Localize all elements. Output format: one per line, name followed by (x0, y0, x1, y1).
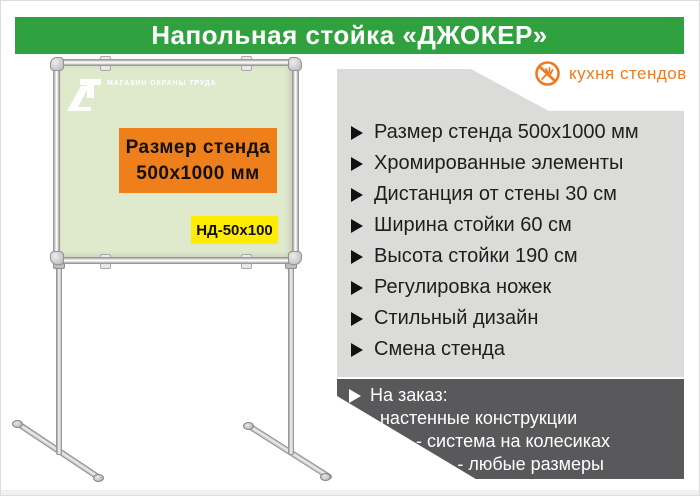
stand-left-post (56, 264, 62, 455)
brand-name: кухня стендов (569, 64, 687, 84)
feature-text: Регулировка ножек (374, 276, 551, 299)
frame-corner-joint (50, 251, 64, 265)
bullet-triangle-icon (351, 126, 363, 140)
frame-bottom-tube (53, 257, 299, 264)
labor-safety-store-label: МАГАЗИН ОХРАНЫ ТРУДА (107, 80, 217, 87)
bullet-triangle-icon (351, 219, 363, 233)
feature-text: Дистанция от стены 30 см (374, 183, 617, 206)
bullet-triangle-icon (351, 343, 363, 357)
feature-text: Хромированные элементы (374, 152, 623, 175)
stand-model-label: НД-50х100 (196, 222, 273, 239)
foot-end-cap (243, 422, 254, 430)
bullet-triangle-icon (349, 389, 361, 403)
custom-order-item: - система на колесиках (337, 430, 684, 453)
bullet-triangle-icon (351, 157, 363, 171)
feature-item: Смена стенда (337, 334, 684, 365)
bullet-triangle-icon (351, 312, 363, 326)
custom-order-item: - настенные конструкции (337, 407, 684, 430)
feature-item: Регулировка ножек (337, 272, 684, 303)
stand-size-box: Размер стенда 500х1000 мм (119, 128, 277, 193)
bullet-triangle-icon (351, 250, 363, 264)
feature-text: Стильный дизайн (374, 307, 538, 330)
stand-size-line1: Размер стенда (126, 135, 271, 161)
foot-end-cap (320, 473, 331, 481)
feature-text: Ширина стойки 60 см (374, 214, 572, 237)
stand-model-box: НД-50х100 (191, 216, 278, 244)
frame-right-tube (292, 59, 299, 264)
feature-item: Хромированные элементы (337, 148, 684, 179)
foot-end-cap (12, 420, 23, 428)
custom-order-box: На заказ: - настенные конструкции - сист… (337, 379, 684, 479)
custom-order-title-row: На заказ: (337, 384, 684, 407)
feature-item: Размер стенда 500х1000 мм (337, 117, 684, 148)
feature-item: Стильный дизайн (337, 303, 684, 334)
promo-poster: Напольная стойка «ДЖОКЕР» кухня стендов … (0, 0, 700, 496)
custom-order-item: - любые размеры (337, 453, 684, 476)
feature-text: Высота стойки 190 см (374, 245, 578, 268)
feature-item: Высота стойки 190 см (337, 241, 684, 272)
bullet-triangle-icon (351, 281, 363, 295)
page-title: Напольная стойка «ДЖОКЕР» (151, 20, 548, 51)
frame-corner-joint (50, 57, 64, 71)
feature-text: Размер стенда 500х1000 мм (374, 121, 639, 144)
frame-corner-joint (288, 57, 302, 71)
foot-end-cap (93, 474, 104, 482)
frame-corner-joint (288, 251, 302, 265)
features-panel: Размер стенда 500х1000 мм Хромированные … (337, 69, 684, 377)
crossed-fork-icon (534, 60, 561, 87)
feature-item: Дистанция от стены 30 см (337, 179, 684, 210)
custom-order-title: На заказ: (370, 384, 448, 407)
stand-size-line2: 500х1000 мм (136, 161, 259, 187)
stand-right-post (288, 264, 294, 455)
title-banner: Напольная стойка «ДЖОКЕР» (15, 17, 684, 54)
floor-strip (1, 490, 699, 495)
bullet-triangle-icon (351, 188, 363, 202)
brand-logo: кухня стендов (534, 60, 687, 87)
frame-top-tube (53, 59, 299, 66)
labor-safety-store-logo-icon (67, 77, 101, 115)
frame-left-tube (53, 59, 60, 264)
feature-text: Смена стенда (374, 338, 505, 361)
feature-item: Ширина стойки 60 см (337, 210, 684, 241)
